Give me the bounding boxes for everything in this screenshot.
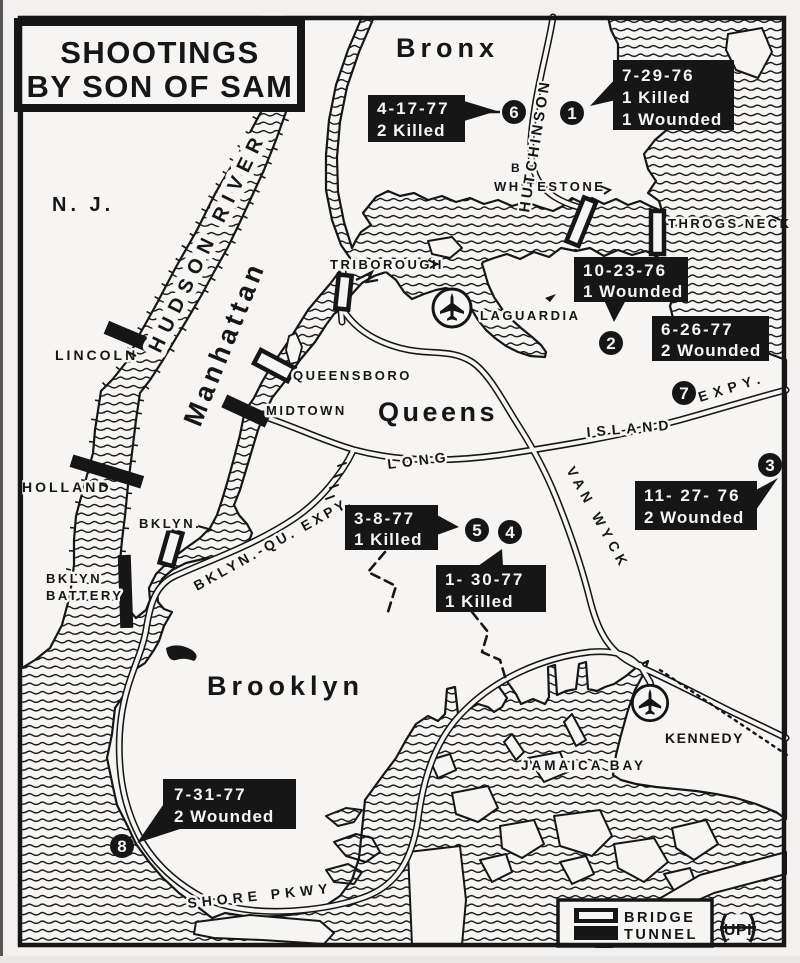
svg-text:UPI: UPI bbox=[724, 922, 752, 939]
svg-text:7-31-77: 7-31-77 bbox=[174, 785, 247, 804]
svg-text:1 Killed: 1 Killed bbox=[445, 592, 513, 611]
svg-text:6: 6 bbox=[509, 103, 518, 122]
svg-text:2: 2 bbox=[606, 334, 615, 353]
svg-text:2 Wounded: 2 Wounded bbox=[644, 508, 744, 527]
svg-text:KENNEDY: KENNEDY bbox=[665, 730, 744, 746]
svg-text:TUNNEL: TUNNEL bbox=[624, 927, 698, 943]
svg-text:1: 1 bbox=[567, 104, 576, 123]
svg-text:LAGUARDIA: LAGUARDIA bbox=[480, 308, 581, 323]
svg-text:7: 7 bbox=[679, 384, 688, 403]
svg-text:Bronx: Bronx bbox=[396, 33, 499, 63]
svg-text:6-26-77: 6-26-77 bbox=[661, 320, 734, 339]
svg-text:THROGS NECK: THROGS NECK bbox=[668, 216, 792, 231]
svg-text:Queens: Queens bbox=[378, 397, 498, 427]
svg-text:HOLLAND: HOLLAND bbox=[22, 479, 111, 495]
svg-text:BY SON OF SAM: BY SON OF SAM bbox=[27, 69, 294, 104]
svg-text:JAMAICA BAY: JAMAICA BAY bbox=[521, 758, 646, 773]
svg-text:LINCOLN: LINCOLN bbox=[55, 347, 138, 363]
svg-text:1 Killed: 1 Killed bbox=[622, 88, 690, 107]
svg-text:BKLYN.: BKLYN. bbox=[139, 516, 201, 531]
svg-text:QUEENSBORO: QUEENSBORO bbox=[293, 368, 412, 383]
svg-text:8: 8 bbox=[117, 837, 126, 856]
svg-text:SHOOTINGS: SHOOTINGS bbox=[60, 35, 260, 70]
svg-text:N. J.: N. J. bbox=[52, 194, 114, 216]
svg-text:5: 5 bbox=[472, 521, 481, 540]
svg-text:2 Killed: 2 Killed bbox=[377, 121, 445, 140]
svg-text:WHITESTONE: WHITESTONE bbox=[494, 179, 605, 194]
svg-text:2 Wounded: 2 Wounded bbox=[174, 807, 274, 826]
svg-text:BATTERY: BATTERY bbox=[46, 588, 123, 603]
svg-text:1 Killed: 1 Killed bbox=[354, 530, 422, 549]
svg-text:11- 27- 76: 11- 27- 76 bbox=[644, 486, 741, 505]
svg-text:4: 4 bbox=[505, 523, 515, 542]
svg-text:MIDTOWN: MIDTOWN bbox=[266, 403, 347, 418]
svg-text:1 Wounded: 1 Wounded bbox=[583, 282, 683, 301]
svg-text:1 Wounded: 1 Wounded bbox=[622, 110, 722, 129]
svg-text:1- 30-77: 1- 30-77 bbox=[445, 570, 524, 589]
svg-text:TRIBOROUGH: TRIBOROUGH bbox=[330, 257, 444, 272]
svg-text:Brooklyn: Brooklyn bbox=[207, 671, 364, 701]
svg-text:BKLYN: BKLYN bbox=[46, 571, 102, 586]
svg-text:BRIDGE: BRIDGE bbox=[624, 910, 695, 926]
svg-text:7-29-76: 7-29-76 bbox=[622, 66, 695, 85]
svg-text:3: 3 bbox=[765, 456, 774, 475]
svg-text:4-17-77: 4-17-77 bbox=[377, 99, 450, 118]
svg-text:2 Wounded: 2 Wounded bbox=[661, 341, 761, 360]
svg-text:3-8-77: 3-8-77 bbox=[354, 509, 415, 528]
svg-text:10-23-76: 10-23-76 bbox=[583, 261, 667, 280]
